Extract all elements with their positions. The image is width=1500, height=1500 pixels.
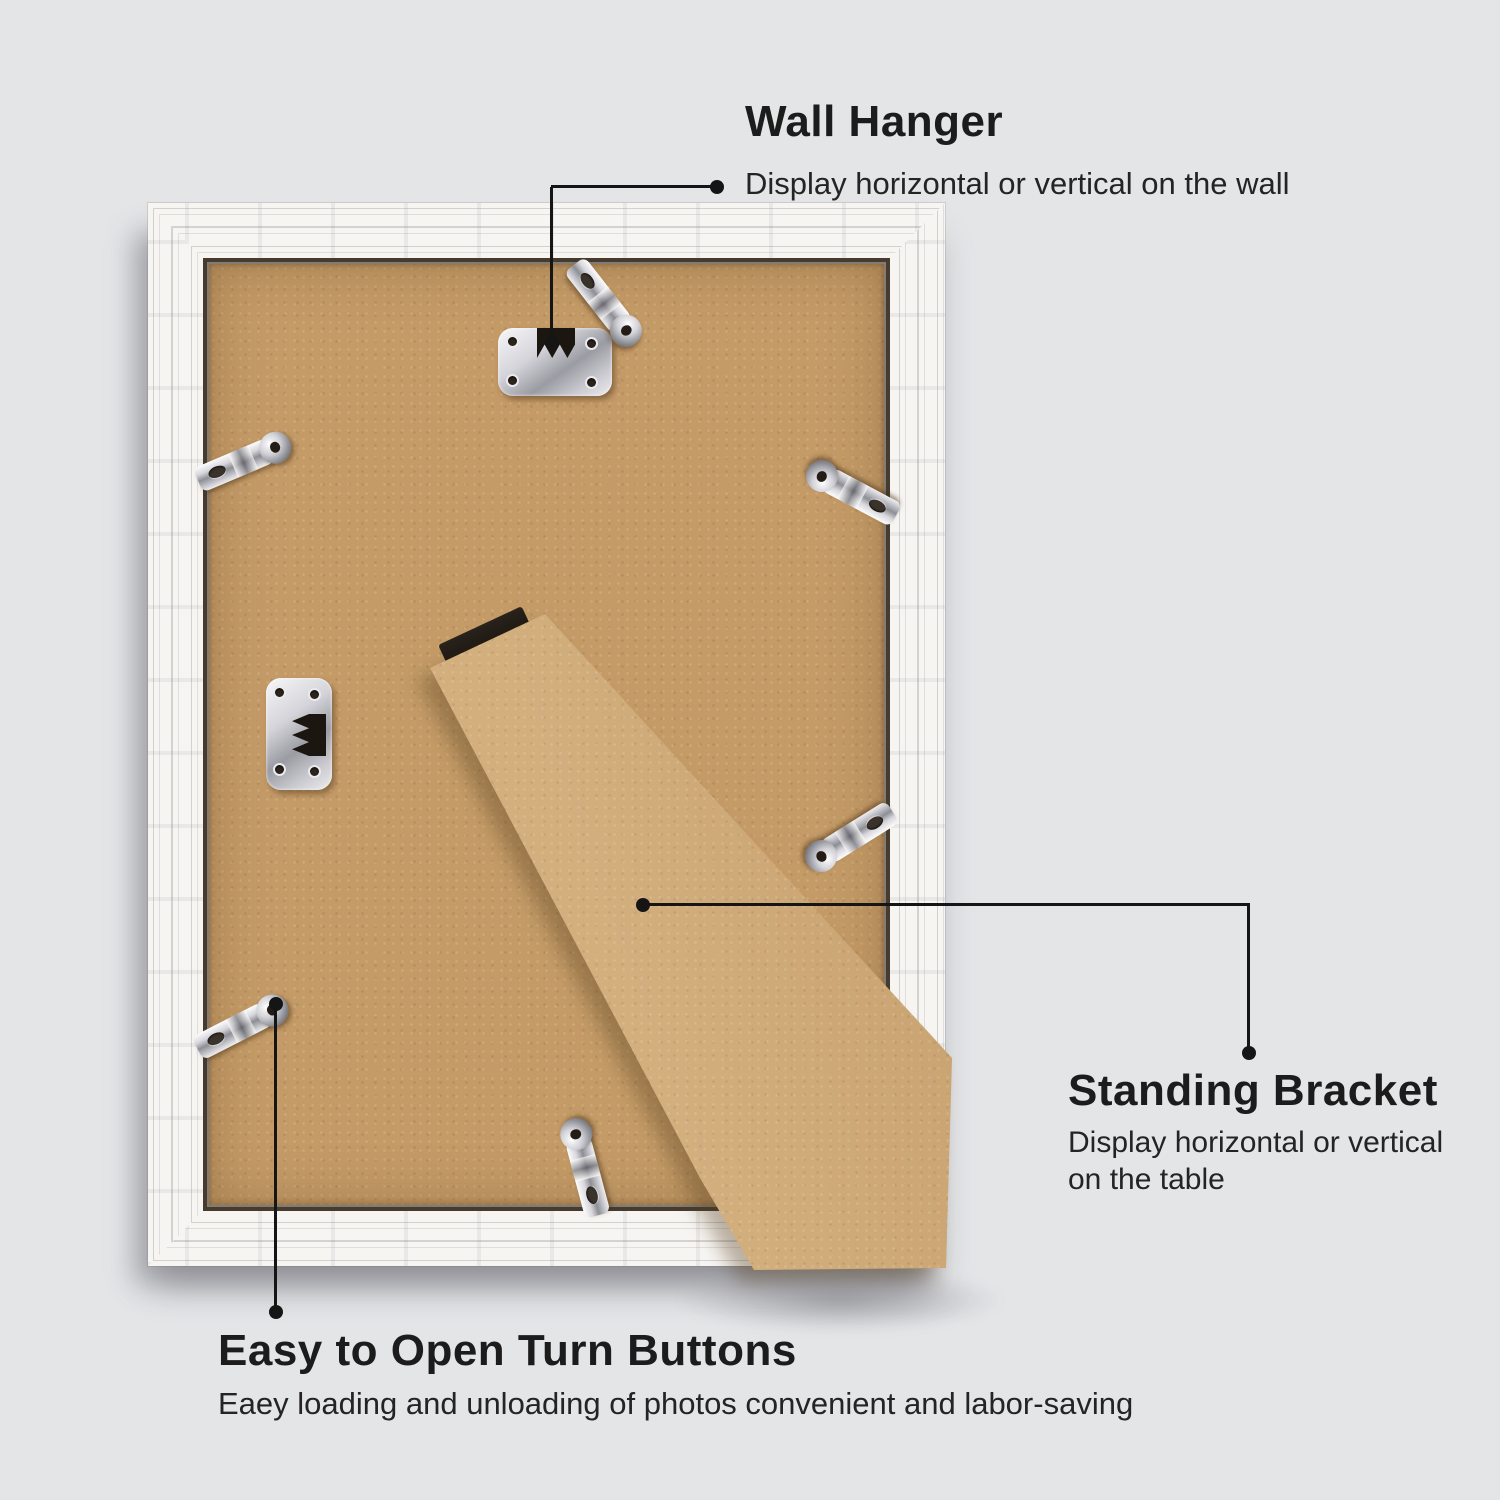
annotation-standing-bracket-sub: Display horizontal or vertical on the ta…	[1068, 1124, 1488, 1198]
side-hanger-plate	[266, 678, 332, 790]
standing-bracket-subtitle-line1: Display horizontal or vertical	[1068, 1126, 1443, 1159]
hanger-hole	[506, 374, 519, 387]
leader-dot	[636, 898, 650, 912]
leader-line-wall-hanger	[551, 185, 717, 188]
leader-dot	[1242, 1046, 1256, 1060]
wall-hanger-title: Wall Hanger	[745, 97, 1003, 147]
sawtooth-notch	[292, 714, 326, 756]
hanger-hole	[585, 337, 598, 350]
hanger-hole	[273, 686, 286, 699]
hanger-hole	[273, 763, 286, 776]
annotation-turn-buttons: Easy to Open Turn Buttons	[218, 1326, 797, 1376]
frame-rail-left	[148, 203, 206, 1266]
leader-dot	[545, 336, 559, 350]
leader-dot	[269, 997, 283, 1011]
leader-dot	[710, 180, 724, 194]
hanger-hole	[308, 765, 321, 778]
standing-bracket-subtitle-line2: on the table	[1068, 1163, 1225, 1196]
turn-buttons-subtitle: Eaey loading and unloading of photos con…	[218, 1386, 1133, 1422]
standing-bracket-title: Standing Bracket	[1068, 1066, 1438, 1116]
annotation-wall-hanger-sub: Display horizontal or vertical on the wa…	[745, 166, 1289, 202]
leader-line-standing-bracket	[643, 903, 1250, 906]
leader-line-standing-bracket	[1247, 904, 1250, 1053]
frame-rail-top	[148, 203, 945, 261]
leader-dot	[269, 1305, 283, 1319]
hanger-hole	[308, 688, 321, 701]
product-photo: Wall Hanger Display horizontal or vertic…	[0, 0, 1500, 1500]
hanger-hole	[506, 335, 519, 348]
leader-line-wall-hanger	[550, 187, 553, 343]
annotation-standing-bracket: Standing Bracket	[1068, 1066, 1438, 1116]
hanger-hole	[585, 376, 598, 389]
leader-line-turn-buttons	[274, 1004, 277, 1312]
turn-buttons-title: Easy to Open Turn Buttons	[218, 1326, 797, 1376]
annotation-turn-buttons-sub: Eaey loading and unloading of photos con…	[218, 1386, 1133, 1422]
annotation-wall-hanger: Wall Hanger	[745, 97, 1003, 147]
wall-hanger-subtitle: Display horizontal or vertical on the wa…	[745, 166, 1289, 202]
standing-bracket-leg	[430, 614, 955, 1270]
